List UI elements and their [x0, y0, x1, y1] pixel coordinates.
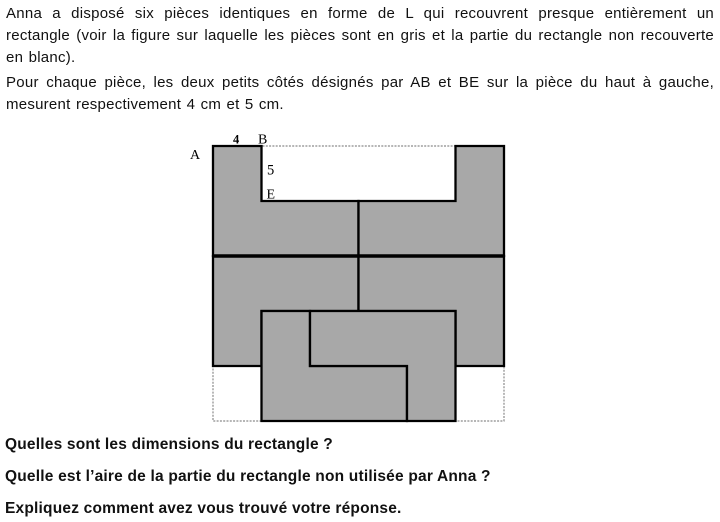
dimension-label-4: 4	[233, 133, 240, 147]
l-pieces-diagram: A4B5E	[180, 128, 526, 430]
intro-paragraph-2: Pour chaque pièce, les deux petits côtés…	[6, 72, 714, 116]
paragraph-line: Pour chaque pièce, les deux petits côtés…	[6, 72, 714, 94]
dimension-label-5: 5	[267, 163, 274, 179]
question-rectangle-dimensions: Quelles sont les dimensions du rectangle…	[5, 434, 715, 455]
l-piece-2	[359, 146, 505, 256]
exercise-sheet: Anna a disposé six pièces identiques en …	[0, 0, 720, 522]
question-explain-answer: Expliquez comment avez vous trouvé votre…	[5, 498, 715, 519]
point-label-B: B	[258, 133, 267, 148]
paragraph-line: mesurent respectivement 4 cm et 5 cm.	[6, 94, 714, 116]
paragraph-line: en blanc).	[6, 47, 714, 69]
point-label-E: E	[267, 188, 276, 203]
paragraph-line: rectangle (voir la figure sur laquelle l…	[6, 25, 714, 47]
point-label-A: A	[190, 148, 201, 163]
paragraph-line: Anna a disposé six pièces identiques en …	[6, 3, 714, 25]
question-unused-area: Quelle est l’aire de la partie du rectan…	[5, 466, 715, 487]
l-piece-1	[213, 146, 359, 256]
intro-paragraph-1: Anna a disposé six pièces identiques en …	[6, 3, 714, 69]
